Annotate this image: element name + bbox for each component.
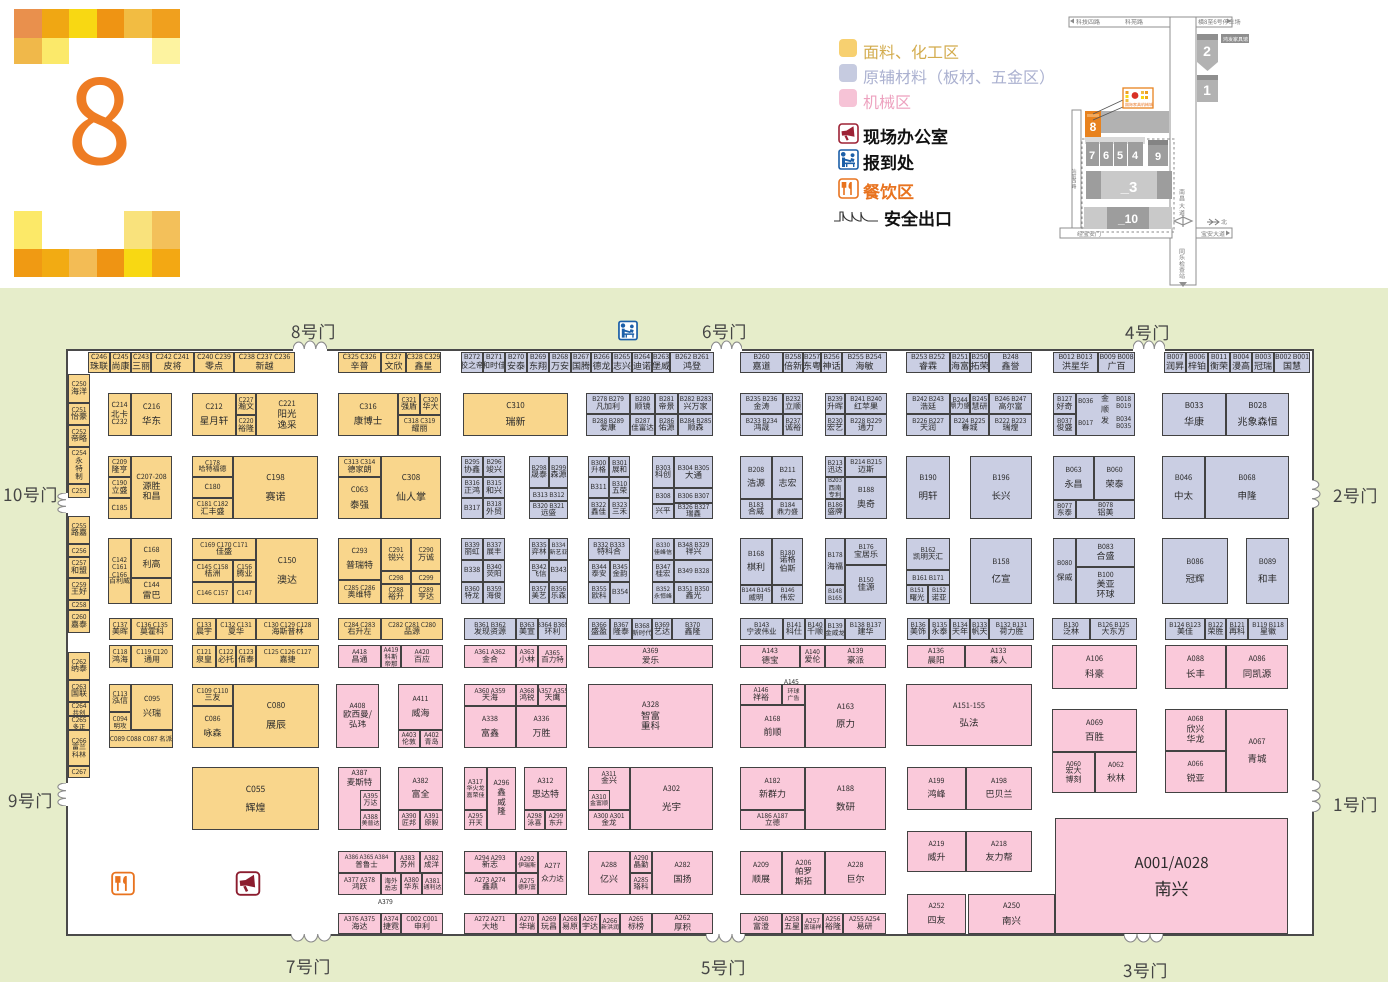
svg-text:4: 4 <box>1132 150 1139 162</box>
svg-text:同乐检查站: 同乐检查站 <box>1178 248 1187 279</box>
svg-text:经宝安门: 经宝安门 <box>1077 229 1101 238</box>
svg-text:5: 5 <box>1117 150 1123 162</box>
svg-text:站前西路: 站前西路 <box>1071 168 1078 189</box>
svg-text:1: 1 <box>1203 82 1211 98</box>
svg-text:科苑路: 科苑路 <box>1125 17 1143 26</box>
svg-text:南昌大道: 南昌大道 <box>1178 188 1187 216</box>
svg-text:6: 6 <box>1103 150 1109 162</box>
svg-text:国际家具机械城: 国际家具机械城 <box>1125 102 1153 108</box>
svg-text:7: 7 <box>1089 150 1095 162</box>
svg-text:横8至6号停车场: 横8至6号停车场 <box>1198 17 1241 26</box>
svg-text:鸿发家具馆: 鸿发家具馆 <box>1223 36 1248 43</box>
svg-text:2: 2 <box>1203 43 1211 59</box>
svg-text:8: 8 <box>1090 120 1097 134</box>
svg-text:_3: _3 <box>1120 179 1138 196</box>
svg-text:北: 北 <box>1221 217 1227 226</box>
svg-text:科技四路: 科技四路 <box>1076 17 1100 26</box>
svg-text:9: 9 <box>1155 151 1161 163</box>
svg-text:_10: _10 <box>1117 212 1138 226</box>
svg-text:宝安大道: 宝安大道 <box>1201 229 1225 238</box>
